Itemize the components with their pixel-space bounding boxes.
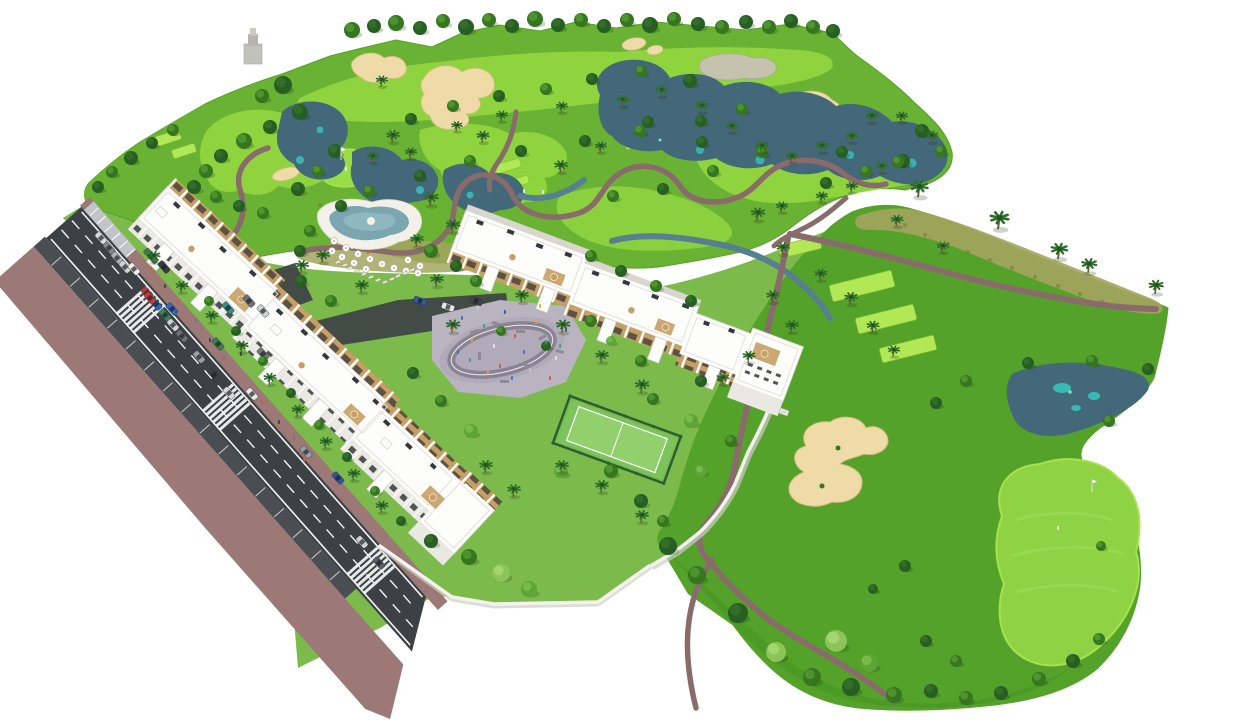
palm-crown: [321, 253, 325, 257]
tree-highlight: [1143, 364, 1150, 371]
tree-highlight: [730, 605, 741, 616]
tree-highlight: [437, 15, 445, 23]
tree-highlight: [960, 692, 968, 700]
person-playground: [477, 306, 479, 310]
umbrella: [363, 266, 370, 273]
tree-highlight: [494, 565, 504, 575]
tree-highlight: [648, 394, 655, 401]
tree-highlight: [635, 495, 643, 503]
umbrella-pole: [331, 250, 333, 252]
palm-shadow: [238, 351, 248, 355]
palm-crown: [900, 114, 903, 117]
tree: [527, 11, 545, 27]
tree-highlight: [575, 14, 583, 22]
tree-highlight: [844, 679, 854, 689]
person-playground: [514, 334, 516, 338]
person-playground: [487, 370, 489, 374]
palm-crown: [380, 78, 383, 81]
tree-highlight: [287, 389, 293, 395]
tree-highlight: [168, 125, 175, 132]
palm-crown: [391, 133, 395, 137]
tree-highlight: [336, 201, 343, 208]
palm-crown: [790, 154, 793, 157]
palm-crown: [371, 154, 374, 157]
scrub-bush: [318, 203, 322, 207]
tree-highlight: [276, 77, 286, 87]
umbrella: [415, 270, 422, 277]
tree-highlight: [661, 538, 671, 548]
palm-crown: [721, 376, 724, 379]
umbrella: [331, 238, 338, 245]
umbrella: [339, 254, 346, 261]
palm-shadow: [558, 331, 569, 335]
palm-crown: [997, 215, 1002, 220]
palm-crown: [781, 245, 785, 249]
palm-crown: [747, 354, 750, 357]
palm-crown: [892, 348, 895, 351]
teal-swirl: [1088, 392, 1100, 400]
render-canvas: Aerial 3D architectural rendering of a w…: [0, 0, 1240, 720]
tree-highlight: [1097, 542, 1103, 548]
palm-crown: [512, 487, 516, 491]
person-walkway: [240, 352, 242, 356]
palm-crown: [481, 134, 484, 137]
tree-highlight: [346, 23, 355, 32]
bunker-grass-tuft: [820, 484, 825, 489]
tree-highlight: [636, 66, 643, 73]
tree-highlight: [696, 116, 703, 123]
palm-shadow: [619, 105, 629, 109]
tree-highlight: [961, 376, 968, 383]
palm-shadow: [898, 121, 908, 125]
tree-highlight: [343, 453, 349, 459]
palm-crown: [640, 513, 644, 517]
tree-highlight: [740, 16, 748, 24]
tree-highlight: [768, 644, 779, 655]
palm-shadow: [481, 471, 492, 475]
person-playground: [535, 320, 537, 324]
palm-shadow: [297, 271, 308, 275]
tree-highlight: [364, 186, 371, 193]
umbrella-pole: [369, 258, 371, 260]
tree-highlight: [586, 316, 593, 323]
tree-highlight: [264, 121, 272, 129]
tree-highlight: [414, 22, 422, 30]
umbrella: [405, 257, 412, 264]
palm-shadow: [878, 171, 888, 175]
tree-highlight: [821, 178, 828, 185]
tree-highlight: [587, 74, 594, 81]
palm-crown: [409, 150, 412, 153]
tree-highlight: [586, 251, 593, 258]
teal-swirl: [1071, 405, 1081, 411]
tree-highlight: [995, 687, 1003, 695]
tree-highlight: [827, 632, 839, 644]
umbrella: [329, 248, 336, 255]
tree-highlight: [1023, 358, 1030, 365]
tree: [597, 19, 613, 33]
umbrella-pole: [419, 265, 421, 267]
palm-shadow: [787, 331, 798, 335]
tree-highlight: [837, 147, 844, 154]
palm-crown: [850, 184, 853, 187]
waste-bunker: [699, 54, 776, 80]
palm-crown: [210, 314, 213, 317]
person-walkway: [351, 245, 353, 249]
person-playground: [483, 324, 485, 328]
person-playground: [493, 344, 495, 348]
tree-highlight: [643, 117, 650, 124]
tree-highlight: [258, 208, 265, 215]
tree-highlight: [313, 166, 320, 173]
tower-top: [250, 28, 256, 36]
tree-highlight: [256, 90, 264, 98]
tower-base: [244, 44, 262, 64]
tree-highlight: [296, 276, 303, 283]
palm-crown: [560, 104, 563, 107]
person-playground: [511, 376, 513, 380]
palm-crown: [849, 295, 853, 299]
tree-highlight: [716, 21, 724, 29]
person-playground: [549, 376, 551, 380]
tree-highlight: [238, 134, 247, 143]
umbrella-pole: [381, 263, 383, 265]
palm-shadow: [778, 253, 789, 257]
umbrella-pole: [365, 268, 367, 270]
palm-shadow: [1084, 271, 1097, 276]
tree-highlight: [686, 296, 693, 303]
person-playground: [539, 304, 541, 308]
lake-right: [1007, 363, 1149, 436]
pool-deck-islet: [367, 217, 375, 225]
tree-highlight: [415, 171, 422, 178]
palm-crown: [941, 244, 944, 247]
tree-highlight: [315, 421, 321, 427]
palm-crown: [561, 323, 565, 327]
person-walkway: [150, 267, 152, 271]
tree: [667, 12, 683, 26]
palm-shadow: [890, 355, 900, 359]
tree-highlight: [471, 276, 478, 283]
palm-shadow: [719, 383, 729, 387]
umbrella: [367, 256, 374, 263]
tree-highlight: [888, 688, 897, 697]
tree: [691, 17, 707, 31]
tree-highlight: [608, 191, 615, 198]
palm-crown: [415, 237, 419, 241]
palm-shadow: [753, 219, 764, 223]
palm-crown: [268, 376, 271, 379]
umbrella-pole: [333, 240, 335, 242]
palm-crown: [756, 211, 760, 215]
palm-shadow: [818, 201, 828, 205]
palm-shadow: [698, 111, 708, 115]
palm-shadow: [778, 211, 788, 215]
palm-tree: [1082, 259, 1096, 276]
person-playground: [461, 316, 463, 320]
palm-shadow: [322, 447, 332, 451]
palm-crown: [500, 113, 503, 116]
palm-crown: [559, 163, 563, 167]
person-walkway: [195, 318, 197, 322]
teal-highlight: [659, 139, 662, 142]
umbrella: [343, 245, 350, 252]
teal-swirl: [416, 186, 424, 194]
palm-shadow: [1053, 257, 1067, 262]
palm-shadow: [597, 151, 607, 155]
golfer: [345, 167, 347, 171]
palm-shadow: [558, 111, 568, 115]
person-walkway: [367, 250, 369, 254]
tree-highlight: [292, 183, 300, 191]
tree-highlight: [232, 327, 238, 333]
tree-highlight: [708, 166, 715, 173]
tree-highlight: [294, 105, 303, 114]
tree-highlight: [147, 138, 154, 145]
tree: [642, 17, 660, 33]
palm-crown: [455, 124, 458, 127]
tree-highlight: [916, 125, 924, 133]
palm-crown: [451, 223, 455, 227]
palm-shadow: [869, 331, 879, 335]
scrub-bush: [1033, 275, 1037, 279]
scrub-bush: [923, 233, 927, 237]
tree: [784, 14, 800, 28]
tree-highlight: [900, 561, 907, 568]
tree-highlight: [326, 296, 333, 303]
person-playground: [499, 364, 501, 368]
palm-shadow: [846, 303, 857, 307]
tree: [715, 20, 731, 34]
person-playground: [559, 344, 561, 348]
palm-crown: [780, 204, 783, 207]
tree-highlight: [425, 245, 433, 253]
tree-highlight: [807, 21, 815, 29]
tree: [806, 20, 822, 34]
tree-highlight: [529, 12, 538, 21]
palm-shadow: [556, 171, 567, 175]
palm-crown: [600, 353, 604, 357]
tree-highlight: [616, 266, 623, 273]
tree-highlight: [805, 669, 815, 679]
scrub-bush: [988, 258, 992, 262]
umbrella-pole: [393, 267, 395, 269]
tree-highlight: [125, 152, 133, 160]
palm-tree: [1150, 281, 1163, 297]
tree-highlight: [465, 156, 472, 163]
tree-highlight: [523, 582, 532, 591]
tree-highlight: [692, 18, 700, 26]
palm-crown: [870, 114, 873, 117]
tree-highlight: [494, 91, 501, 98]
palm-shadow: [768, 301, 779, 305]
umbrella: [355, 251, 362, 258]
person-playground: [529, 368, 531, 372]
tree-highlight: [107, 167, 114, 174]
tree: [413, 21, 429, 35]
tree-highlight: [1087, 356, 1094, 363]
umbrella-pole: [357, 253, 359, 255]
scrub-bush: [1078, 292, 1082, 296]
tree-highlight: [1094, 634, 1101, 641]
tree-highlight: [390, 16, 399, 25]
scrub-bush: [966, 250, 970, 254]
palm-shadow: [868, 121, 878, 125]
tree-highlight: [696, 466, 703, 473]
tree-highlight: [893, 157, 900, 164]
palm-shadow: [788, 161, 798, 165]
palm-crown: [429, 195, 433, 199]
tree-highlight: [448, 101, 455, 108]
tree: [388, 15, 406, 31]
tree-highlight: [1067, 655, 1075, 663]
tree: [344, 22, 362, 38]
teal-swirl: [296, 156, 304, 164]
tree-highlight: [465, 425, 473, 433]
palm-shadow: [893, 225, 903, 229]
palm-shadow: [597, 361, 608, 365]
tree-highlight: [329, 145, 337, 153]
palm-crown: [930, 134, 933, 137]
person-walkway: [293, 436, 295, 440]
palm-crown: [360, 283, 364, 287]
palm-shadow: [658, 95, 668, 99]
umbrella-pole: [353, 262, 355, 264]
palm-crown: [850, 134, 853, 137]
palm-crown: [352, 472, 355, 475]
tree-highlight: [436, 396, 443, 403]
palm-crown: [820, 194, 823, 197]
tree-highlight: [621, 14, 629, 22]
palm-crown: [760, 144, 763, 147]
person-walkway: [278, 420, 280, 424]
palm-shadow: [637, 391, 648, 395]
palm-crown: [1154, 283, 1158, 287]
tree: [458, 19, 476, 35]
tree-highlight: [234, 201, 241, 208]
palm-shadow: [318, 261, 329, 265]
umbrella-pole: [341, 256, 343, 258]
umbrella: [417, 263, 424, 270]
tree-highlight: [460, 20, 469, 29]
tree-highlight: [737, 104, 744, 111]
palm-shadow: [150, 261, 160, 265]
palm-crown: [820, 144, 823, 147]
palm-shadow: [453, 130, 462, 133]
tree-highlight: [552, 19, 560, 27]
teal-swirl: [317, 127, 324, 134]
palm-shadow: [557, 471, 568, 475]
scrub-bush: [903, 223, 907, 227]
palm-crown: [560, 463, 564, 467]
palm-shadow: [412, 245, 423, 249]
palm-crown: [296, 408, 299, 411]
tree-highlight: [651, 281, 658, 288]
palm-crown: [451, 323, 455, 327]
golfer: [1057, 526, 1059, 530]
palm-shadow: [928, 141, 938, 145]
palm-tree: [1052, 244, 1068, 262]
palm-shadow: [517, 301, 528, 305]
tree-highlight: [862, 655, 872, 665]
palm-crown: [880, 164, 883, 167]
person-playground: [523, 350, 525, 354]
palm-crown: [180, 284, 183, 287]
tree-highlight: [861, 166, 868, 173]
palm-crown: [621, 98, 624, 101]
palm-crown: [771, 293, 775, 297]
palm-shadow: [745, 361, 755, 365]
palm-shadow: [357, 291, 368, 295]
palm-crown: [435, 277, 439, 281]
umbrella-pole: [345, 247, 347, 249]
palm-crown: [1057, 247, 1062, 252]
person-playground: [457, 350, 459, 354]
tree-highlight: [541, 84, 548, 91]
tree-highlight: [483, 14, 491, 22]
tree-highlight: [598, 20, 606, 28]
tree-highlight: [371, 487, 377, 493]
tree-highlight: [726, 436, 733, 443]
tree-highlight: [951, 656, 958, 663]
tree-highlight: [463, 550, 472, 559]
palm-shadow: [939, 251, 949, 255]
tree-highlight: [516, 146, 523, 153]
tree-highlight: [931, 398, 938, 405]
tree-highlight: [305, 226, 312, 233]
palm-shadow: [817, 279, 827, 283]
palm-crown: [640, 383, 644, 387]
tree-highlight: [635, 126, 642, 133]
palm-shadow: [479, 141, 489, 145]
palm-shadow: [848, 191, 858, 195]
aerial-render: Aerial 3D architectural rendering of a w…: [0, 0, 1240, 720]
tree-highlight: [406, 114, 413, 121]
palm-shadow: [1151, 292, 1163, 296]
person-walkway: [261, 400, 263, 404]
tree-highlight: [188, 181, 196, 189]
tree-highlight: [211, 192, 218, 199]
palm-crown: [1087, 262, 1091, 266]
palm-shadow: [637, 521, 648, 525]
palm-shadow: [407, 157, 417, 161]
palm-crown: [324, 440, 327, 443]
palm-crown: [917, 184, 922, 189]
umbrella: [391, 265, 398, 272]
palm-shadow: [758, 151, 768, 155]
palm-shadow: [498, 120, 508, 124]
grey-utility-tower: [244, 28, 262, 64]
tree-highlight: [668, 13, 676, 21]
tree: [826, 24, 842, 38]
tree-highlight: [295, 246, 302, 253]
teal-highlight: [1068, 390, 1072, 394]
tree-highlight: [684, 75, 692, 83]
person-playground: [555, 356, 557, 360]
tree-highlight: [607, 337, 613, 343]
tree-highlight: [200, 165, 208, 173]
tree: [436, 14, 452, 28]
tree: [505, 19, 521, 33]
person-walkway: [303, 458, 305, 462]
tree-highlight: [763, 21, 771, 29]
teal-swirl: [467, 192, 474, 199]
tree-highlight: [93, 182, 100, 189]
palm-crown: [300, 263, 304, 267]
tree-highlight: [506, 20, 514, 28]
person-walkway: [164, 284, 166, 288]
tree-highlight: [368, 20, 376, 28]
